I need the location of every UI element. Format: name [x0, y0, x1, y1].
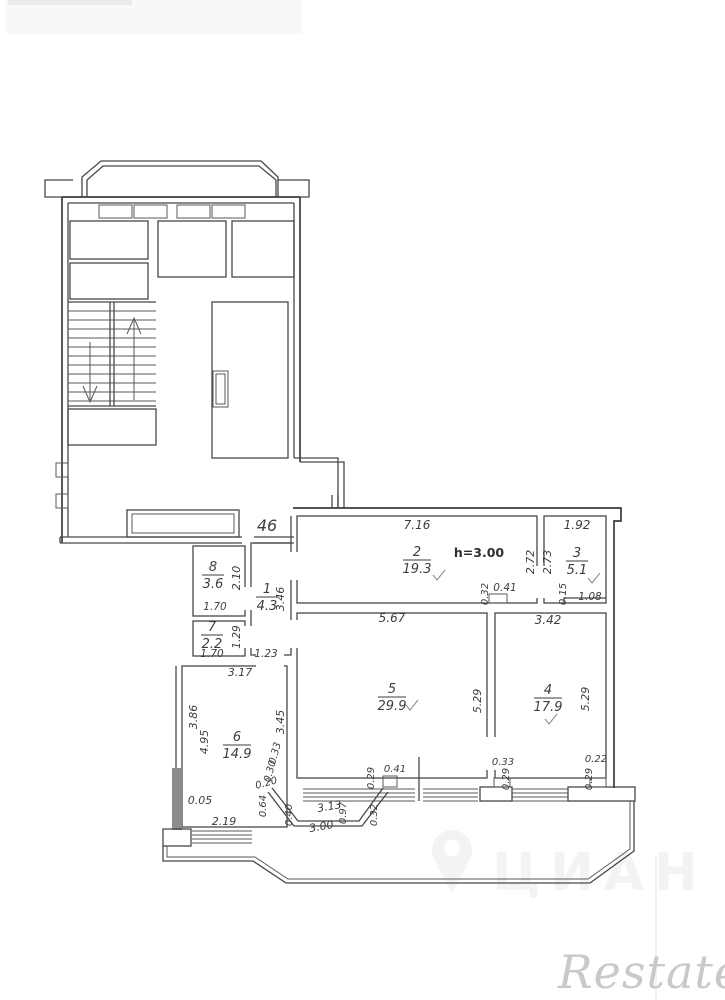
cian-watermark-text: ЦИАН — [492, 843, 708, 903]
ceiling-height-label: h=3.00 — [454, 545, 505, 560]
dimension-label: 0.22 — [585, 754, 607, 765]
top-left-stub — [45, 180, 73, 197]
window-glazing — [423, 789, 478, 801]
room-number-label: 5 — [388, 682, 396, 697]
dimension-label: 0.15 — [558, 583, 569, 605]
dimension-label: 3.45 — [274, 710, 287, 735]
cian-watermark: ЦИАН — [432, 830, 708, 903]
dimension-label: 3.86 — [187, 705, 200, 730]
dimension-label: 0.97 — [338, 801, 349, 824]
room-area-label: 2.2 — [202, 637, 223, 652]
core-room-outline — [212, 302, 288, 458]
vent-duct-box — [489, 594, 507, 603]
dimension-label: 0.32 — [480, 583, 491, 605]
dimension-label: 0.20 — [254, 775, 278, 791]
dimension-label: 3.00 — [308, 818, 334, 835]
room-number-label: 4 — [544, 683, 552, 698]
dimension-label: 2.10 — [230, 566, 243, 591]
dimension-label: 2.19 — [212, 815, 237, 828]
dimension-label: 4.95 — [198, 730, 211, 755]
bay-outline-inner — [87, 166, 276, 197]
scanned-floor-plan-page: ЦИАН — [0, 0, 725, 1000]
apartment-number-label: 46 — [257, 516, 277, 535]
dimension-label: 2.72 — [524, 550, 537, 575]
room-area-label: 4.3 — [257, 599, 278, 614]
room-area-label: 17.9 — [534, 700, 563, 715]
room-number-label: 1 — [263, 582, 271, 597]
check-mark — [433, 570, 445, 580]
dimension-label: 0.29 — [584, 768, 595, 790]
hall-bottom-wall — [60, 537, 294, 543]
dimension-label: 0.41 — [493, 582, 516, 594]
door-room-8 — [245, 587, 251, 610]
room-number-label: 7 — [208, 620, 217, 635]
room-6-solid-wall — [172, 768, 182, 830]
dimension-label: 1.23 — [254, 648, 277, 660]
top-right-stub — [278, 180, 309, 197]
dimension-label: 1.29 — [231, 625, 243, 649]
service-room-outline — [70, 221, 148, 259]
room-number-label: 8 — [209, 560, 217, 575]
vent-boxes — [99, 205, 245, 218]
dimension-label: 0.33 — [492, 757, 514, 768]
staircase — [68, 302, 156, 406]
room-area-label: 5.1 — [567, 563, 588, 578]
room-number-label: 2 — [413, 545, 421, 560]
stairwell-block — [45, 161, 344, 543]
dimension-label: 0.05 — [188, 794, 213, 807]
dimension-label: 5.29 — [471, 689, 484, 714]
under-stair-room-outline — [68, 409, 156, 445]
dimension-label: 1.92 — [564, 518, 591, 532]
service-room-outline — [232, 221, 294, 277]
entry-stub-wall — [332, 495, 338, 508]
dimension-label: 0.40 — [284, 804, 295, 826]
cian-pin-hole — [444, 840, 460, 856]
room-area-label: 19.3 — [403, 562, 432, 577]
dimension-label: 3.42 — [535, 613, 562, 627]
vent-box — [177, 205, 210, 218]
floor-plan-canvas: ЦИАН — [0, 0, 725, 1000]
dimension-label: 0.32 — [369, 804, 380, 826]
dimension-label: 0.41 — [384, 764, 406, 775]
dimension-label: 5.67 — [379, 611, 406, 625]
dimension-label: 0.29 — [501, 768, 512, 790]
vent-box — [134, 205, 167, 218]
room-number-label: 6 — [233, 730, 241, 745]
stair-up-arrow — [127, 318, 141, 400]
service-room-outline — [70, 263, 148, 299]
vent-box — [99, 205, 132, 218]
dimension-label: 5.29 — [579, 687, 592, 712]
check-mark — [406, 700, 418, 710]
stair-down-arrow — [83, 342, 97, 402]
window-glazing — [303, 789, 415, 801]
dimension-label: 3.17 — [228, 666, 253, 679]
room-area-label: 3.6 — [203, 577, 224, 592]
dimension-label: 0.64 — [258, 795, 269, 817]
window-glazing — [512, 789, 568, 801]
scan-band — [6, 0, 302, 34]
door-room-5 — [291, 620, 297, 648]
elevator-outline-inner — [132, 514, 234, 533]
wall-pier — [163, 829, 191, 846]
restate-watermark-text: Restate — [557, 945, 725, 999]
window-glazing — [192, 831, 252, 843]
dimension-label: 0.29 — [366, 767, 377, 789]
door-room-2 — [291, 552, 297, 580]
shaft-box-inner — [216, 374, 225, 404]
dimension-label: 1.70 — [203, 601, 227, 613]
wall-pier — [568, 787, 635, 801]
dimension-label: 2.73 — [541, 550, 554, 575]
check-mark — [545, 714, 557, 724]
room-number-label: 3 — [573, 546, 581, 561]
dimension-label: 7.16 — [404, 518, 431, 532]
service-room-outline — [158, 221, 226, 277]
stair-rail — [110, 302, 114, 406]
stair-steps — [68, 311, 156, 401]
dimension-labels: 7.161.922.722.730.320.410.151.085.673.42… — [187, 518, 607, 835]
scan-strip — [8, 0, 132, 5]
vent-box — [212, 205, 245, 218]
check-mark — [588, 573, 600, 583]
room-area-label: 29.9 — [378, 699, 407, 714]
room-area-label: 14.9 — [223, 747, 252, 762]
door-room-7 — [245, 626, 251, 648]
shaft-box-outer — [213, 371, 228, 407]
dimension-label: 1.08 — [578, 591, 602, 603]
